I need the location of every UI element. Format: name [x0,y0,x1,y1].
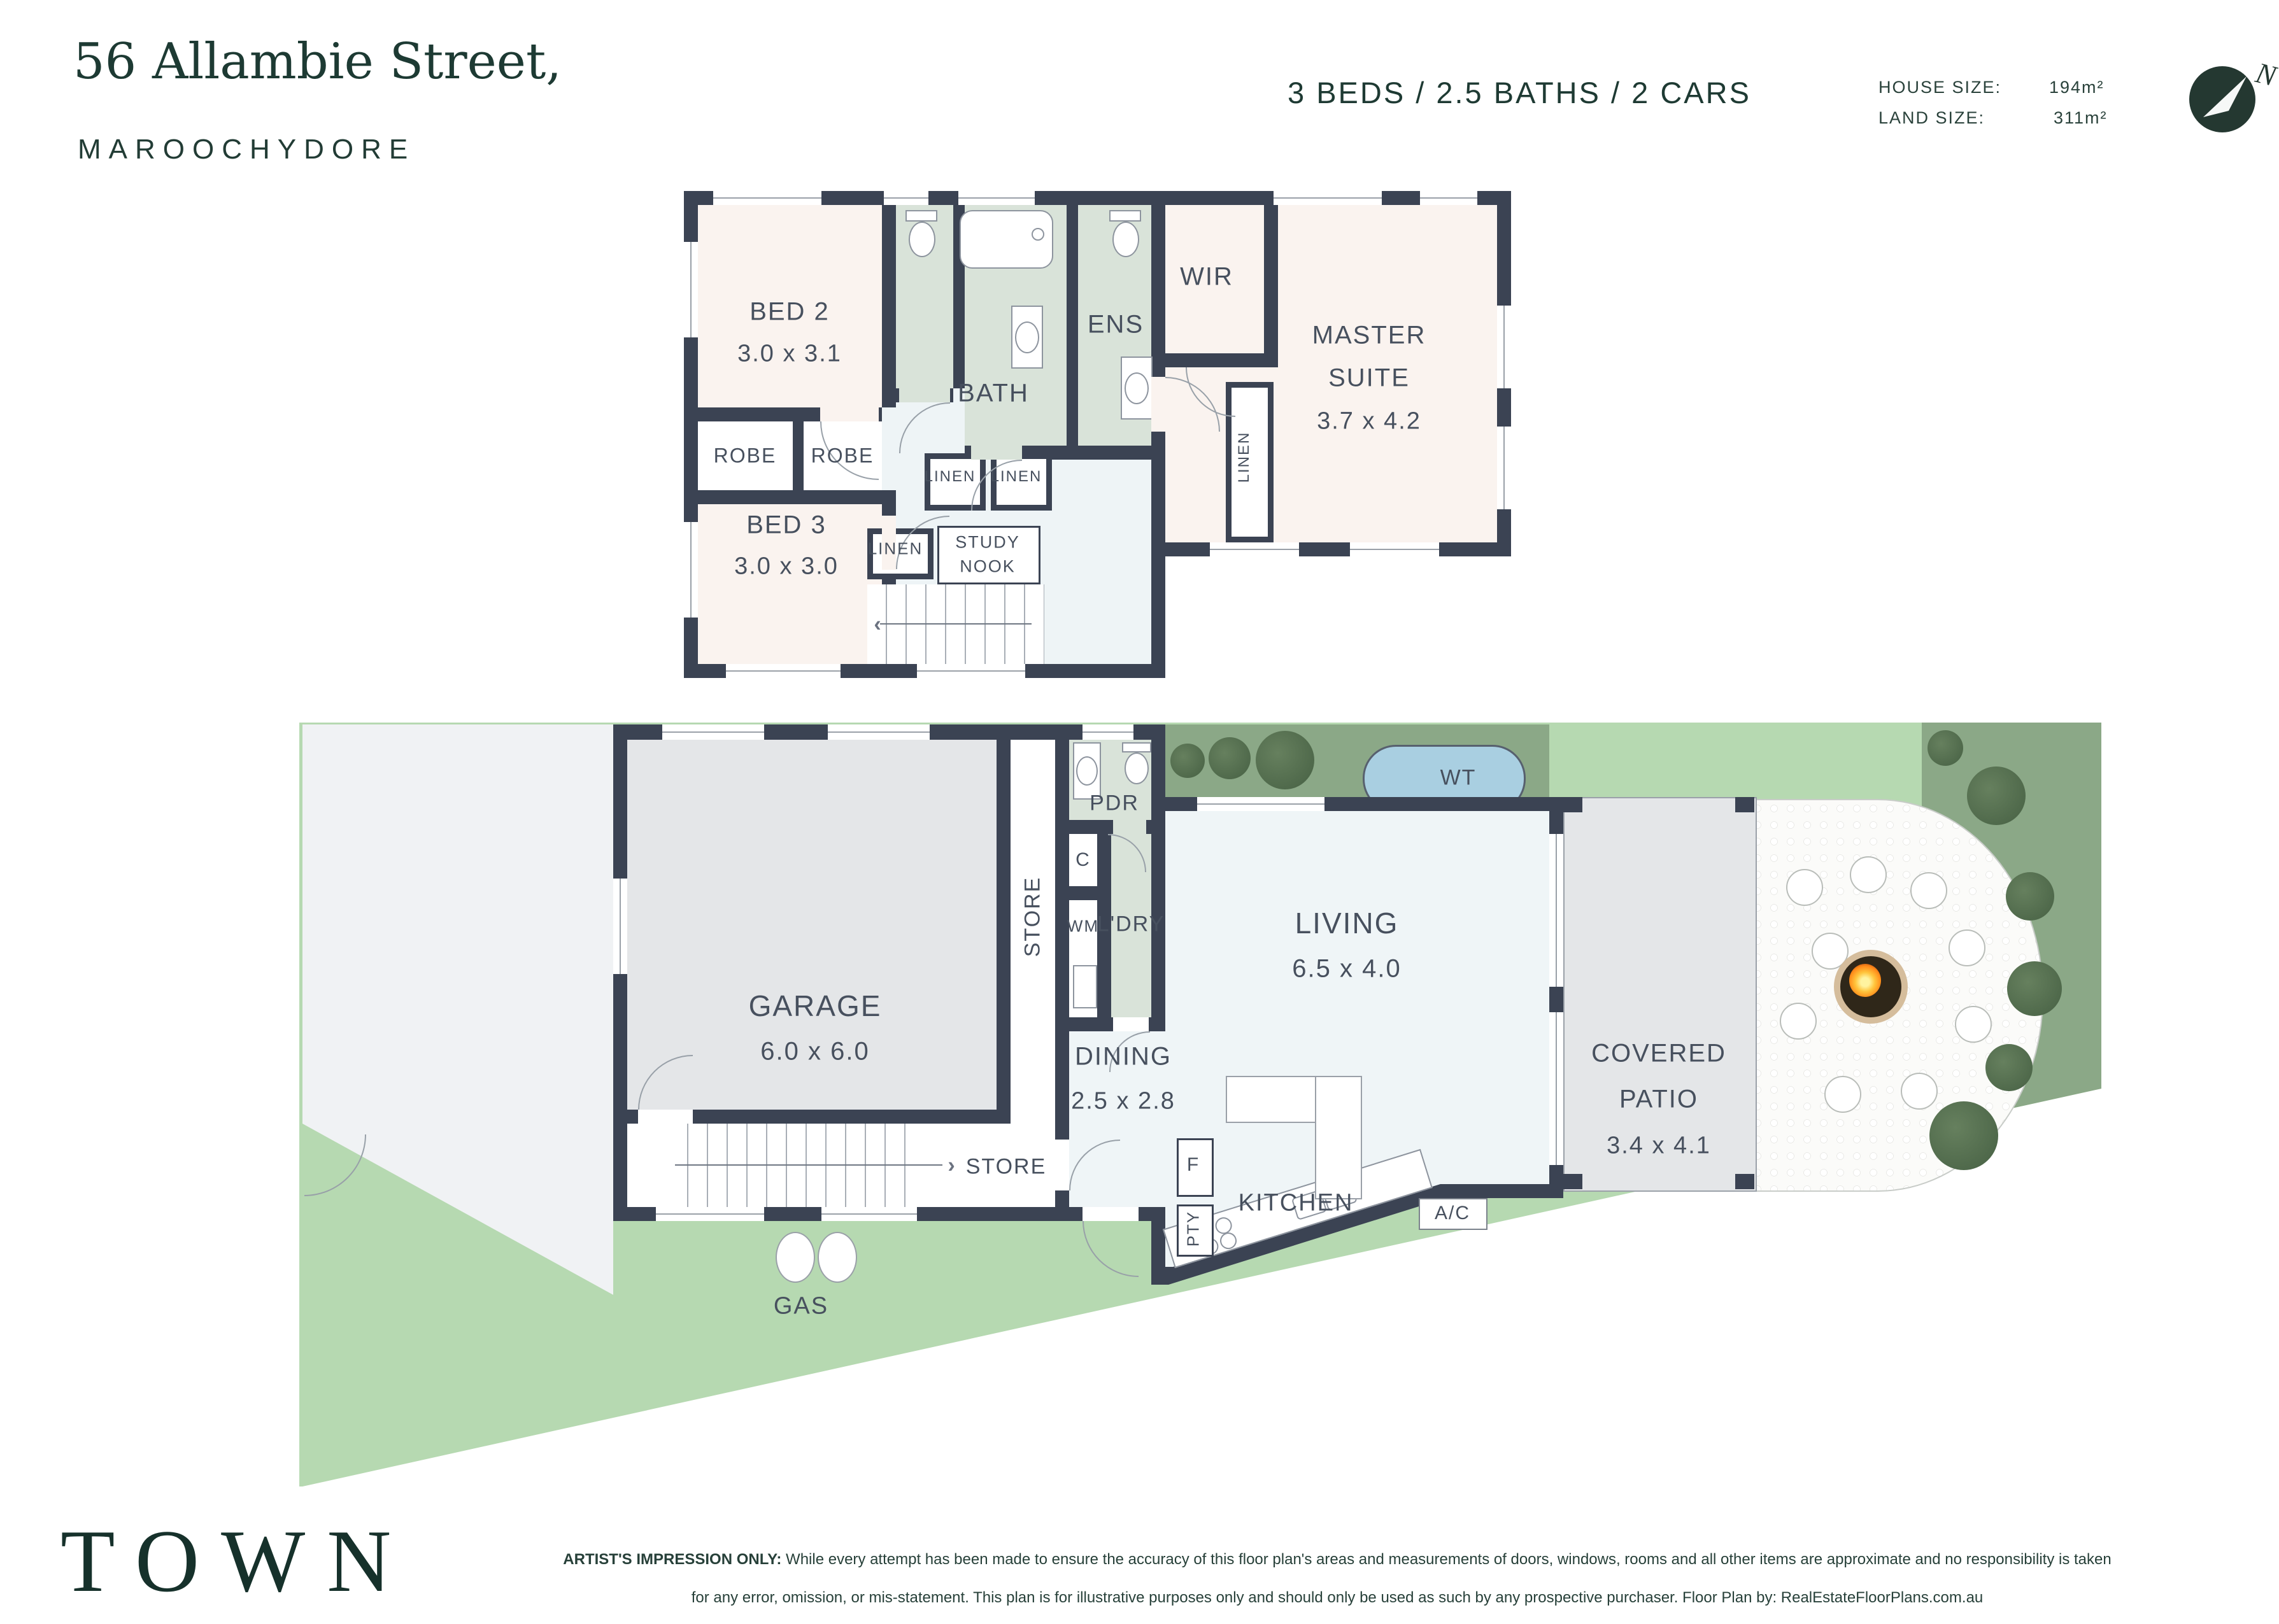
room-label-bed3: BED 3 [746,511,827,540]
door-gap [820,407,879,421]
basin-icon [1015,321,1039,353]
stairs-direction-line [880,623,1032,625]
toilet-bowl-icon [1112,222,1139,257]
wall [1055,1017,1165,1031]
bush-icon [1928,730,1963,766]
bath-tap-icon [1032,228,1044,241]
sliding-door [1549,834,1563,987]
label-linen-2: LINEN [991,468,1042,486]
window [1350,542,1439,556]
label-patio-1: COVERED [1591,1040,1726,1068]
room-label-ens: ENS [1088,311,1144,339]
room-label-garage: GARAGE [749,989,882,1023]
room-label-living: LIVING [1295,906,1399,940]
window [726,664,841,678]
basin-icon [1125,372,1149,404]
wall [1069,886,1097,900]
kitchen-island [1315,1076,1362,1199]
window [917,664,1025,678]
label-cupboard: C [1076,849,1091,871]
label-study-1: STUDY [955,533,1020,553]
house-size-value: 194m² [2049,78,2105,97]
stepping-stone [1949,929,1985,966]
window [656,1207,764,1221]
stepping-stone [1955,1006,1992,1043]
window [613,879,627,974]
window [1274,191,1382,205]
room-dims-master: 3.7 x 4.2 [1317,408,1421,435]
bush-icon [1256,731,1314,789]
toilet-tank-icon [1109,210,1141,222]
page-title: 56 Allambie Street, [73,33,562,90]
basin-icon [1076,756,1098,786]
wall [684,490,896,504]
label-store-under-stairs: STORE [966,1155,1047,1180]
room-dims-garage: 6.0 x 6.0 [760,1038,869,1066]
bush-icon [1209,737,1251,779]
room-label-dining: DINING [1075,1043,1172,1071]
dims-patio: 3.4 x 4.1 [1607,1133,1711,1160]
patio-post [1735,797,1754,812]
label-linen-hall: LINEN [868,539,923,559]
disclaimer-bold: ARTIST'S IMPRESSION ONLY: [563,1551,781,1568]
stepping-stone [1910,872,1947,909]
bush-icon [1967,766,2026,825]
room-dims-dining: 2.5 x 2.8 [1071,1088,1175,1115]
door-gap [638,1110,693,1124]
wall [1055,740,1069,1017]
fire-pit-icon [1834,950,1908,1024]
stepping-stone [1786,869,1823,906]
label-water-tank: WT [1440,766,1477,791]
bush-icon [1929,1101,1998,1170]
label-robe-2: ROBE [811,444,874,468]
toilet-bowl-icon [1125,752,1149,784]
stairs-arrow-icon: › [948,1154,955,1178]
window [1197,797,1324,811]
window [1497,427,1511,509]
window [1083,724,1133,740]
window [1497,306,1511,388]
room-dims-bed3: 3.0 x 3.0 [734,553,839,581]
label-fridge: F [1187,1154,1200,1176]
agency-logo: TOWN [60,1510,413,1613]
land-size-value: 311m² [2054,108,2108,128]
stepping-stone [1850,856,1887,893]
room-dims-bed2: 3.0 x 3.1 [737,341,842,368]
label-ldry: L'DRY [1097,912,1165,937]
stepping-stone [1780,1003,1817,1040]
house-size-label: HOUSE SIZE: [1878,78,2001,97]
window [662,724,764,740]
toilet-bowl-icon [909,222,935,257]
wall [1151,205,1165,678]
bush-icon [1985,1044,2033,1091]
stairs-arrow-icon: ‹ [874,612,881,637]
window [1210,542,1299,556]
label-robe-1: ROBE [714,444,777,468]
window [684,522,698,618]
door-gap [1113,1017,1149,1031]
label-wm: WM [1067,917,1099,936]
room-label-wir: WIR [1180,263,1233,292]
stepping-stone [1901,1073,1938,1110]
room-label-bath: BATH [958,379,1029,408]
label-patio-2: PATIO [1619,1085,1698,1114]
label-study-2: NOOK [960,557,1016,577]
wall [1264,205,1278,367]
window [828,724,930,740]
flame-icon [1849,964,1881,997]
patio-post [1563,797,1582,812]
window [884,191,928,205]
sliding-door [1549,1012,1563,1165]
entry-door-gap [1083,1207,1139,1221]
wall [1151,542,1511,556]
window [713,191,821,205]
door-gap [1055,1140,1069,1190]
door-gap [899,388,950,402]
door-gap [1113,820,1146,834]
land-size-label: LAND SIZE: [1878,108,1985,128]
window [821,1207,917,1221]
label-store-corridor: STORE [1021,877,1046,957]
label-gas: GAS [774,1293,828,1320]
label-pdr: PDR [1090,791,1139,816]
patio-post [1563,1174,1582,1189]
stepping-stone [1824,1076,1861,1113]
toilet-tank-icon [905,210,937,222]
bush-icon [2007,961,2062,1016]
wall [1165,353,1278,367]
label-pantry: PTY [1184,1211,1203,1247]
label-linen-wir: LINEN [1235,432,1253,483]
toilet-tank-icon [1122,742,1151,752]
door-gap [1151,377,1165,432]
patio-post [1735,1174,1754,1189]
gas-bottle-icon [818,1232,857,1283]
door-gap [971,446,1022,460]
window [684,242,698,337]
room-label-master-2: SUITE [1328,364,1410,393]
bush-icon [1170,744,1205,778]
floorplan-page: 56 Allambie Street, MAROOCHYDORE 3 BEDS … [0,0,2279,1624]
bush-icon [2006,872,2054,921]
window [1420,191,1477,205]
suburb-subtitle: MAROOCHYDORE [78,134,415,166]
room-label-kitchen: KITCHEN [1239,1190,1354,1217]
wall [997,740,1011,1124]
beds-baths-cars-summary: 3 BEDS / 2.5 BATHS / 2 CARS [1288,75,1751,110]
window [958,191,1035,205]
compass-north-icon: N [2183,53,2278,143]
stairs-direction-line [675,1164,942,1166]
label-ac: A/C [1435,1203,1470,1224]
room-dims-living: 6.5 x 4.0 [1292,955,1401,984]
wall [793,421,804,490]
wall [882,205,896,407]
svg-text:N: N [2252,56,2278,93]
gas-bottle-icon [776,1232,815,1283]
label-linen-1: LINEN [925,468,976,486]
laundry-appliance-icon [1073,965,1097,1008]
disclaimer-text: ARTIST'S IMPRESSION ONLY: While every at… [560,1541,2114,1617]
room-label-bed2: BED 2 [749,298,830,327]
wall [1151,724,1165,1031]
room-label-master-1: MASTER [1312,321,1426,350]
disclaimer-rest: While every attempt has been made to ens… [692,1551,2112,1606]
wall [1067,205,1078,460]
